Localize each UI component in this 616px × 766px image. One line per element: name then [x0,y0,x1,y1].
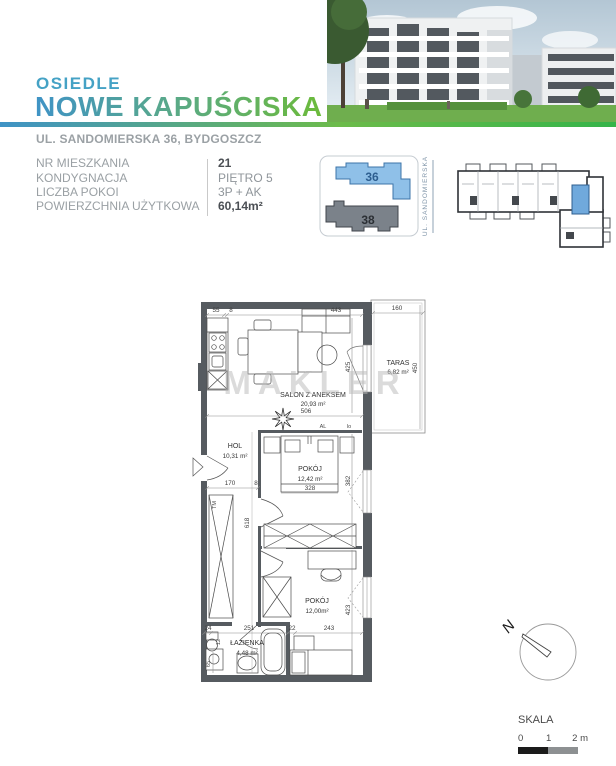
svg-text:12,42 m²: 12,42 m² [298,476,323,483]
person [365,99,369,109]
info-row: LICZBA POKOI 3P + AK [36,185,316,199]
estate-name: NOWE KAPUŚCISKA [35,91,323,123]
scale-ticks: 0 1 2 m [518,733,582,745]
svg-text:382: 382 [345,475,352,486]
info-value: 21 [208,156,231,170]
gradient-divider [0,122,616,127]
svg-text:10,31 m²: 10,31 m² [223,453,248,460]
north-label: N [499,617,519,637]
info-label: NR MIESZKANIA [36,156,208,170]
left-building [355,18,512,112]
info-divider [207,159,208,216]
building-photo [327,0,616,123]
compass-needle [522,634,551,657]
scale-bar-gray [548,747,578,754]
svg-text:243: 243 [324,625,335,632]
scale-tick-1: 1 [546,733,551,744]
street-label: UL. SANDOMIERSKA [422,156,429,236]
room-label-pokoj2: POKÓJ [305,596,329,605]
svg-text:251: 251 [244,625,255,632]
scale-section: SKALA 0 1 2 m [518,714,582,754]
svg-text:423: 423 [345,604,352,615]
floor-key-plan [450,145,616,250]
scale-bar-black [518,747,548,754]
info-row: KONDYGNACJA PIĘTRO 5 [36,170,316,184]
right-building [542,48,616,112]
lamp-symbol [272,408,294,430]
floor-plan: 55 8 443 160 425 450 506 AL lo 170 8 618… [190,288,440,692]
scale-label: SKALA [518,714,582,726]
svg-text:TM: TM [212,501,218,509]
address-line: UL. SANDOMIERSKA 36, BYDGOSZCZ [36,132,262,146]
svg-text:8: 8 [254,480,258,487]
svg-text:65: 65 [206,661,212,667]
compass: N [495,610,595,695]
flyer-page: OSIEDLE NOWE KAPUŚCISKA [0,0,616,766]
svg-text:170: 170 [225,480,236,487]
svg-text:AL: AL [320,424,327,430]
svg-text:12,00m²: 12,00m² [305,608,328,615]
site-plan: 36 38 UL. SANDOMIERSKA [315,145,450,250]
info-row: POWIERZCHNIA UŻYTKOWA 60,14m² [36,199,316,213]
svg-text:8: 8 [229,307,233,314]
svg-text:20,93 m²: 20,93 m² [301,401,326,408]
scale-tick-2: 2 m [572,733,588,744]
svg-text:328: 328 [305,485,316,492]
room-labels: SALON Z ANEKSEM 20,93 m² TARAS 6,82 m² H… [223,360,410,657]
svg-text:506: 506 [301,408,312,415]
info-label: POWIERZCHNIA UŻYTKOWA [36,199,208,213]
person [447,101,450,109]
info-label: LICZBA POKOI [36,185,208,199]
svg-text:618: 618 [244,517,251,528]
room-label-pokoj1: POKÓJ [298,464,322,473]
info-value: PIĘTRO 5 [208,171,273,185]
svg-text:443: 443 [331,307,342,314]
room-label-hol: HOL [228,443,243,450]
building-36-label: 36 [365,170,379,184]
svg-text:12: 12 [216,639,222,645]
svg-text:160: 160 [392,305,403,312]
scale-bar [518,747,578,754]
svg-text:4,48 m²: 4,48 m² [236,650,257,657]
info-row: NR MIESZKANIA 21 [36,156,316,170]
info-label: KONDYGNACJA [36,171,208,185]
highlighted-unit [572,185,589,214]
room-label-lazienka: ŁAZIENKA [230,640,264,647]
svg-text:lo: lo [347,424,351,430]
apartment-info: NR MIESZKANIA 21 KONDYGNACJA PIĘTRO 5 LI… [36,156,316,214]
svg-text:24: 24 [204,625,212,632]
building-38-label: 38 [361,213,375,227]
watermark: MAKLER [190,364,440,402]
scale-tick-0: 0 [518,733,523,744]
info-value: 3P + AK [208,185,261,199]
svg-text:55: 55 [212,307,220,314]
svg-text:22: 22 [288,625,296,632]
info-value: 60,14m² [208,199,263,213]
